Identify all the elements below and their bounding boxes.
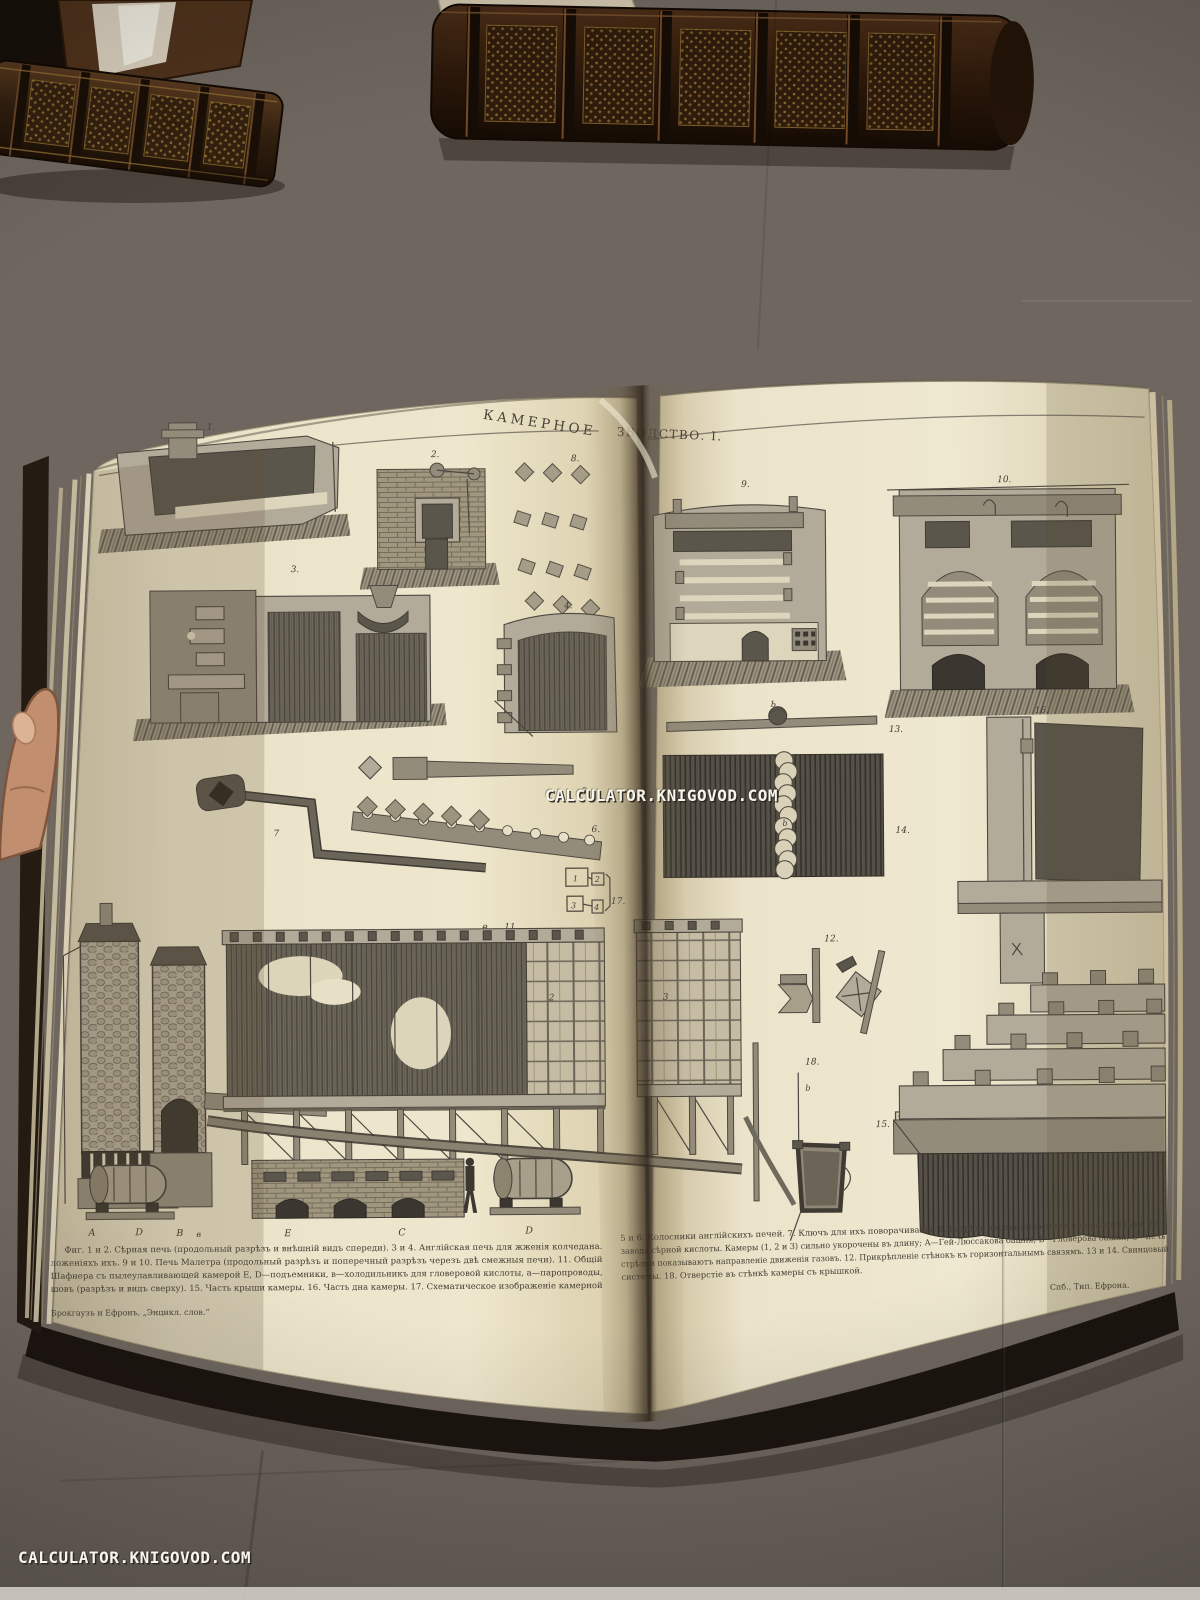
svg-text:D: D	[524, 1225, 533, 1236]
svg-text:14.: 14.	[895, 826, 910, 836]
svg-text:18.: 18.	[805, 1057, 820, 1067]
photo-open-encyclopedia-plate: КАМЕРНОЕ 1. 2.	[0, 0, 1200, 1600]
photo-bottom-edge	[0, 1587, 1200, 1600]
svg-text:4.: 4.	[563, 601, 573, 611]
left-book-stack	[0, 0, 285, 203]
svg-text:Е: Е	[283, 1228, 291, 1239]
svg-text:С: С	[398, 1227, 406, 1238]
svg-text:1.: 1.	[207, 423, 216, 433]
svg-text:b: b	[805, 1084, 810, 1093]
svg-text:2: 2	[548, 993, 555, 1003]
svg-text:13.: 13.	[889, 725, 904, 735]
thumb	[0, 689, 58, 860]
svg-text:3: 3	[571, 901, 576, 910]
svg-text:12.: 12.	[824, 934, 839, 944]
svg-text:3.: 3.	[291, 565, 300, 575]
svg-text:b: b	[782, 819, 787, 828]
fig-14-lead-seam-top-view: 14. b	[663, 751, 910, 880]
left-book-spine	[0, 59, 284, 188]
svg-text:10.: 10.	[997, 475, 1012, 485]
svg-text:1: 1	[573, 874, 578, 883]
svg-text:9.: 9.	[741, 480, 750, 490]
svg-text:8.: 8.	[571, 454, 580, 464]
svg-text:15.: 15.	[876, 1120, 891, 1130]
watermark-center: CALCULATOR.KNIGOVOD.COM	[545, 786, 778, 805]
open-book: КАМЕРНОЕ 1. 2.	[10, 379, 1184, 1492]
svg-text:2.: 2.	[430, 450, 440, 460]
fig-2-sulfur-furnace-front: 2.	[359, 450, 500, 590]
svg-text:7: 7	[273, 829, 279, 839]
right-book-spine	[431, 4, 1036, 151]
right-book	[430, 0, 1035, 173]
watermark-bottom-left: CALCULATOR.KNIGOVOD.COM	[18, 1548, 251, 1567]
